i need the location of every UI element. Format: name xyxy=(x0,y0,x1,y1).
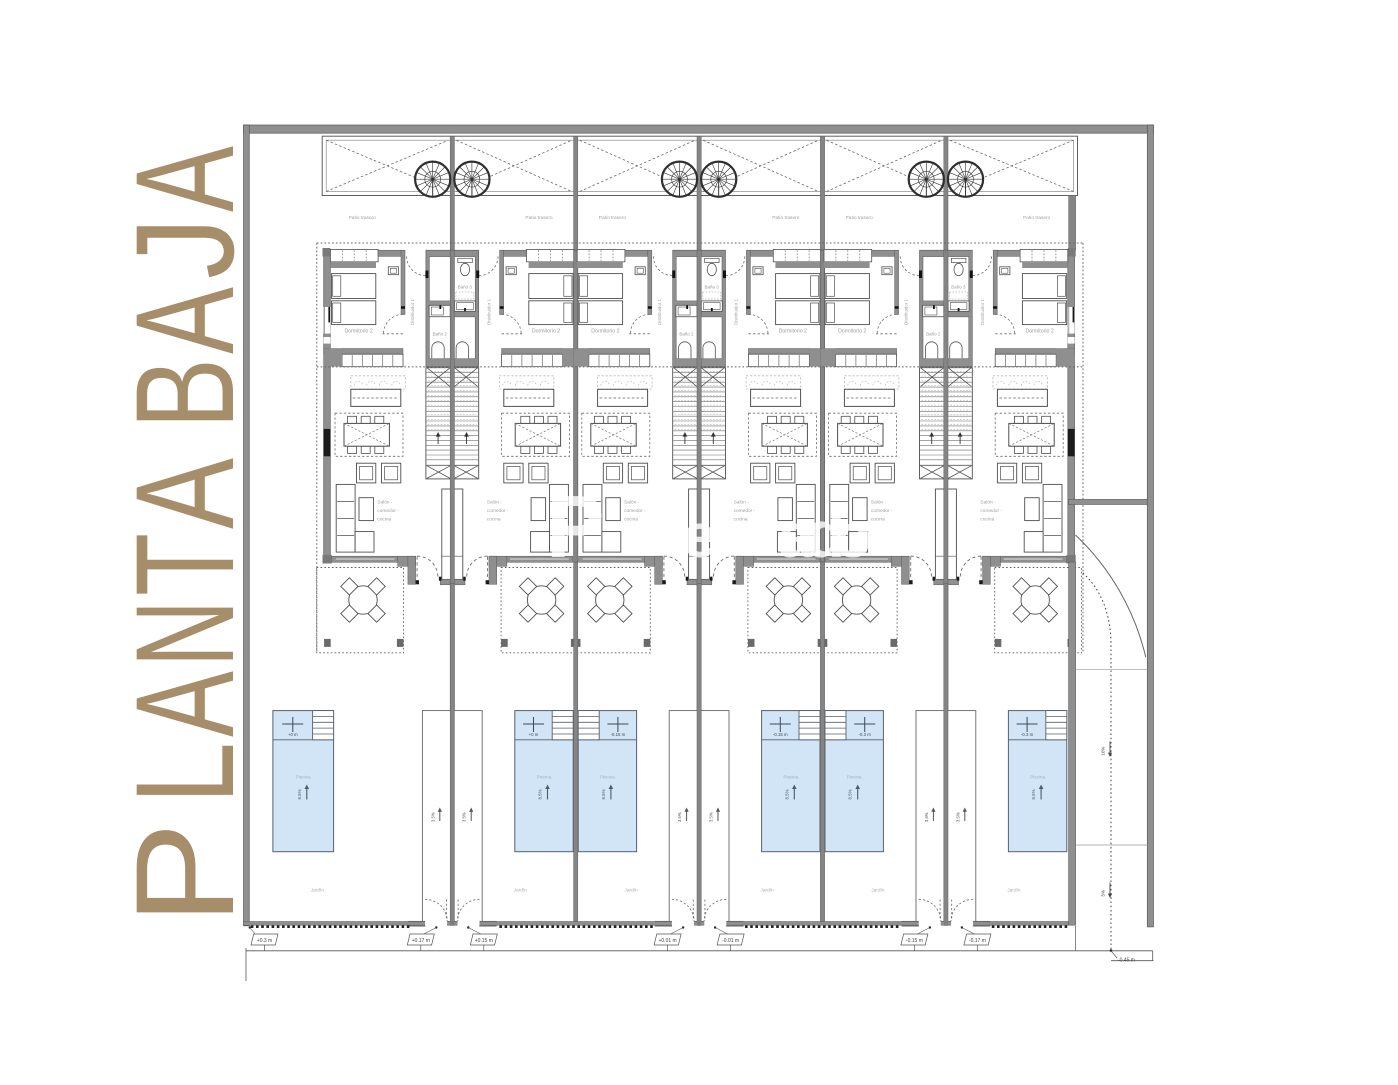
svg-text:Salón -: Salón - xyxy=(980,500,996,506)
svg-text:cocina: cocina xyxy=(980,517,994,523)
svg-text:-0.3 m: -0.3 m xyxy=(1021,732,1034,737)
svg-text:Patio trasero: Patio trasero xyxy=(525,215,553,221)
svg-text:+0.01 m: +0.01 m xyxy=(658,938,676,944)
svg-text:3.5%: 3.5% xyxy=(709,812,714,822)
svg-text:3.5%: 3.5% xyxy=(462,812,467,822)
svg-text:comedor -: comedor - xyxy=(377,508,399,514)
svg-text:Dormitorio 2: Dormitorio 2 xyxy=(532,329,560,335)
svg-text:Piscina: Piscina xyxy=(600,774,615,779)
svg-text:Salón -: Salón - xyxy=(377,500,393,506)
svg-text:o: o xyxy=(834,502,872,571)
svg-text:Piscina: Piscina xyxy=(783,774,798,779)
svg-text:8.5%: 8.5% xyxy=(538,789,543,799)
svg-text:Piscina: Piscina xyxy=(847,774,862,779)
svg-text:8.5%: 8.5% xyxy=(601,789,606,799)
svg-text:P: P xyxy=(106,822,263,925)
svg-text:Jardín: Jardín xyxy=(311,887,325,893)
svg-text:Salón -: Salón - xyxy=(734,500,750,506)
svg-text:Baño 3: Baño 3 xyxy=(704,284,719,289)
svg-text:comedor -: comedor - xyxy=(624,508,646,514)
svg-text:8.5%: 8.5% xyxy=(297,789,302,799)
svg-text:e: e xyxy=(682,502,716,571)
svg-text:3.5%: 3.5% xyxy=(955,812,960,822)
svg-text:A: A xyxy=(106,146,263,212)
svg-text:Distribuidor 1: Distribuidor 1 xyxy=(657,299,662,325)
svg-text:Patio trasero: Patio trasero xyxy=(599,215,627,221)
svg-text:5%: 5% xyxy=(1101,890,1106,896)
svg-text:Patio trasero: Patio trasero xyxy=(772,215,800,221)
svg-text:Baño 2: Baño 2 xyxy=(679,332,694,337)
svg-text:T: T xyxy=(106,533,263,596)
svg-text:Jardín: Jardín xyxy=(760,887,774,893)
svg-text:Baño 2: Baño 2 xyxy=(433,332,448,337)
svg-text:cocina: cocina xyxy=(624,517,638,523)
svg-text:+0.3 m: +0.3 m xyxy=(257,938,272,944)
svg-text:cocina: cocina xyxy=(487,517,501,523)
svg-text:Dormitorio 2: Dormitorio 2 xyxy=(344,329,372,335)
svg-text:+0 m: +0 m xyxy=(529,732,539,737)
svg-text:-0.17 m: -0.17 m xyxy=(969,938,986,944)
svg-text:cocina: cocina xyxy=(871,517,885,523)
svg-text:8.5%: 8.5% xyxy=(848,789,853,799)
svg-text:Baño 2: Baño 2 xyxy=(926,332,941,337)
svg-text:+0.15 m: +0.15 m xyxy=(475,938,493,944)
svg-text:Distribuidor 1: Distribuidor 1 xyxy=(904,299,909,325)
svg-text:Patio trasero: Patio trasero xyxy=(349,215,377,221)
svg-text:Dormitorio 2: Dormitorio 2 xyxy=(1025,329,1053,335)
svg-text:-0.15 m: -0.15 m xyxy=(906,938,923,944)
svg-text:Piscina: Piscina xyxy=(296,774,311,779)
svg-text:3.5%: 3.5% xyxy=(430,812,435,822)
svg-text:L: L xyxy=(106,742,263,804)
svg-text:comedor -: comedor - xyxy=(871,508,893,514)
svg-text:-0.15 m: -0.15 m xyxy=(611,732,626,737)
svg-text:Jardín: Jardín xyxy=(624,887,638,893)
svg-text:Patio trasero: Patio trasero xyxy=(1023,215,1051,221)
svg-text:8.5%: 8.5% xyxy=(784,789,789,799)
svg-text:A: A xyxy=(106,287,263,354)
svg-text:Dormitorio 2: Dormitorio 2 xyxy=(779,329,807,335)
svg-text:-0.15 m: -0.15 m xyxy=(773,732,788,737)
svg-text:Salón -: Salón - xyxy=(871,500,887,506)
svg-text:comedor -: comedor - xyxy=(980,508,1002,514)
svg-text:3.5%: 3.5% xyxy=(924,812,929,822)
svg-text:Piscina: Piscina xyxy=(1030,774,1045,779)
svg-text:Salón -: Salón - xyxy=(487,500,503,506)
svg-text:Jardín: Jardín xyxy=(871,887,885,893)
svg-text:cocina: cocina xyxy=(377,517,391,523)
svg-text:A: A xyxy=(106,671,263,737)
svg-text:B: B xyxy=(106,358,263,429)
svg-text:Jardín: Jardín xyxy=(1007,887,1021,893)
svg-text:Patio trasero: Patio trasero xyxy=(846,215,874,221)
svg-text:+0 m: +0 m xyxy=(288,732,298,737)
svg-text:Salón -: Salón - xyxy=(624,500,640,506)
svg-text:cocina: cocina xyxy=(734,517,748,523)
svg-text:Distribuidor 1: Distribuidor 1 xyxy=(487,299,492,325)
svg-text:3.5%: 3.5% xyxy=(677,812,682,822)
svg-text:Dormitorio 2: Dormitorio 2 xyxy=(591,329,619,335)
svg-text:Jardín: Jardín xyxy=(514,887,528,893)
svg-text:-0.3 m: -0.3 m xyxy=(859,732,872,737)
svg-text:Distribuidor 1: Distribuidor 1 xyxy=(980,299,985,325)
svg-text:8.5%: 8.5% xyxy=(1031,789,1036,799)
svg-text:comedor -: comedor - xyxy=(734,508,756,514)
svg-text:+0.17 m: +0.17 m xyxy=(412,938,430,944)
svg-text:-0.45 m: -0.45 m xyxy=(1118,958,1135,964)
svg-text:P: P xyxy=(546,477,605,576)
svg-text:Distribuidor 1: Distribuidor 1 xyxy=(410,299,415,325)
svg-text:Distribuidor 1: Distribuidor 1 xyxy=(733,299,738,325)
svg-text:Baño 3: Baño 3 xyxy=(951,284,966,289)
svg-text:Baño 3: Baño 3 xyxy=(458,284,473,289)
svg-text:Piscina: Piscina xyxy=(537,774,552,779)
svg-text:-0.01 m: -0.01 m xyxy=(722,938,739,944)
svg-text:Dormitorio 2: Dormitorio 2 xyxy=(838,329,866,335)
svg-text:comedor -: comedor - xyxy=(487,508,509,514)
svg-text:J: J xyxy=(106,217,263,279)
svg-text:A: A xyxy=(106,458,263,529)
svg-text:10%: 10% xyxy=(1101,747,1106,756)
svg-text:N: N xyxy=(106,600,263,667)
